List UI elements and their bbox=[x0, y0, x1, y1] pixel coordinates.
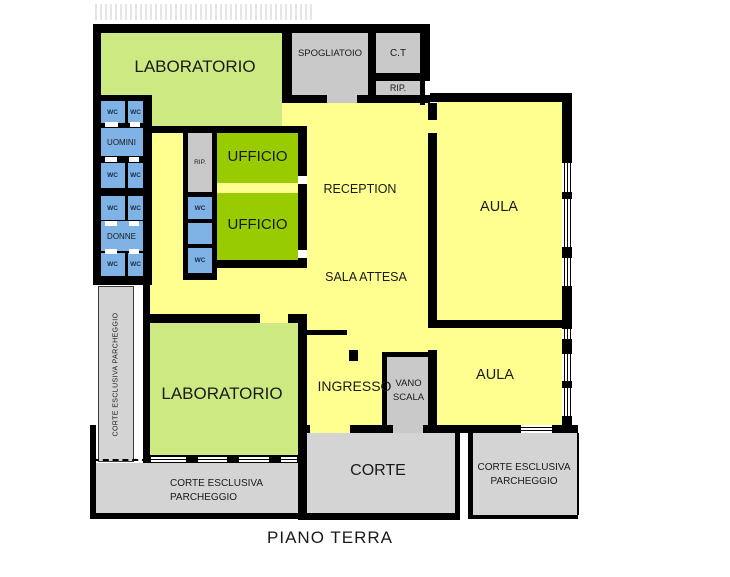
plan-title: PIANO TERRA bbox=[245, 527, 415, 549]
zone-label-sala-attesa: SALA ATTESA bbox=[306, 269, 426, 285]
wall bbox=[420, 24, 430, 73]
room-wc: WC bbox=[100, 101, 125, 123]
window bbox=[562, 198, 572, 248]
room-uomini: UOMINI bbox=[100, 128, 143, 156]
room-wc: WC bbox=[128, 163, 143, 188]
door-opening bbox=[393, 425, 423, 433]
wall bbox=[428, 320, 572, 328]
court-label-corte: CORTE bbox=[318, 461, 438, 481]
door-opening bbox=[130, 122, 140, 127]
door-opening bbox=[129, 249, 139, 254]
room-rip-column: RIP. bbox=[188, 133, 212, 192]
room-label: WC bbox=[130, 261, 141, 268]
wall bbox=[368, 73, 430, 81]
wall bbox=[298, 126, 307, 268]
room-spogliatoio bbox=[292, 33, 368, 95]
room-label-spogliatoio: SPOGLIATOIO bbox=[292, 46, 368, 60]
room-label-ufficio-2: UFFICIO bbox=[217, 215, 298, 233]
room-label: WC bbox=[107, 172, 118, 179]
room-label: WC bbox=[107, 109, 118, 116]
door-opening bbox=[428, 328, 437, 350]
wall bbox=[93, 24, 101, 285]
door-opening bbox=[327, 95, 357, 103]
door-opening bbox=[105, 249, 117, 254]
window bbox=[562, 387, 572, 417]
room-label: RIP. bbox=[390, 83, 406, 93]
room-wc: WC bbox=[100, 196, 125, 220]
court-label-parcheggio-left-strip: CORTE ESCLUSIVA PARCHEGGIO bbox=[110, 288, 123, 462]
window bbox=[520, 425, 553, 433]
structural-column bbox=[349, 350, 358, 361]
door-opening bbox=[310, 425, 350, 433]
room-label: WC bbox=[195, 205, 206, 212]
wall bbox=[298, 513, 460, 520]
room-label: UOMINI bbox=[107, 138, 136, 147]
door-opening bbox=[428, 120, 437, 133]
window bbox=[238, 456, 270, 462]
door-opening bbox=[105, 221, 117, 226]
wall bbox=[212, 260, 307, 268]
court-label-parcheggio-bottom-left: CORTE ESCLUSIVA PARCHEGGIO bbox=[170, 477, 302, 505]
wall bbox=[428, 103, 437, 120]
room-wc: WC bbox=[128, 196, 143, 220]
door-opening bbox=[298, 250, 307, 258]
window bbox=[562, 353, 572, 382]
wall bbox=[282, 24, 292, 103]
room-rip-top: RIP. bbox=[376, 81, 420, 95]
room-wc: WC bbox=[188, 197, 212, 219]
wall bbox=[143, 280, 150, 461]
wall bbox=[428, 350, 437, 433]
room-wc: WC bbox=[100, 253, 125, 276]
room-label: C.T bbox=[390, 48, 406, 59]
room-ct: C.T bbox=[376, 33, 420, 73]
wall bbox=[368, 24, 376, 103]
door-opening bbox=[298, 176, 307, 184]
wall bbox=[430, 93, 572, 102]
room-wc: WC bbox=[128, 101, 143, 123]
room-wc: WC bbox=[128, 253, 143, 276]
room-label: WC bbox=[130, 205, 141, 212]
room-label: WC bbox=[107, 261, 118, 268]
room-label-aula-top: AULA bbox=[449, 198, 549, 216]
room-label: RIP. bbox=[194, 159, 206, 166]
wall bbox=[90, 425, 96, 518]
wall bbox=[93, 24, 430, 33]
wall bbox=[455, 433, 460, 513]
room-label-aula-bottom: AULA bbox=[445, 366, 545, 384]
hatch-marks bbox=[95, 4, 313, 20]
room-label-laboratorio-top: LABORATORIO bbox=[115, 57, 275, 77]
window bbox=[562, 328, 572, 340]
wall bbox=[143, 314, 260, 323]
room-label: WC bbox=[195, 257, 206, 264]
wall bbox=[428, 133, 437, 328]
room-label: WC bbox=[107, 205, 118, 212]
room-label: WC bbox=[130, 109, 141, 116]
door-opening bbox=[105, 157, 117, 162]
wall bbox=[468, 515, 578, 519]
zone-label-ingresso: INGRESSO bbox=[302, 377, 407, 394]
court-label-parcheggio-bottom-right: CORTE ESCLUSIVA PARCHEGGIO bbox=[470, 461, 578, 493]
window bbox=[150, 456, 187, 462]
wall bbox=[382, 352, 430, 357]
door-opening bbox=[105, 122, 118, 127]
window bbox=[197, 456, 228, 462]
room-label-laboratorio-bottom: LABORATORIO bbox=[142, 384, 302, 404]
room-wc: WC bbox=[100, 163, 125, 188]
wall bbox=[143, 126, 307, 133]
door-opening bbox=[129, 157, 139, 162]
window bbox=[562, 162, 572, 193]
door-opening bbox=[129, 221, 139, 226]
room-wc: WC bbox=[188, 248, 212, 273]
window bbox=[280, 456, 298, 462]
room-label-ufficio-1: UFFICIO bbox=[217, 147, 298, 165]
wall bbox=[300, 330, 347, 335]
room-label: WC bbox=[130, 172, 141, 179]
wall bbox=[90, 513, 300, 519]
room-wc-lobby bbox=[188, 223, 212, 244]
zone-label-reception: RECEPTION bbox=[310, 181, 410, 197]
window bbox=[562, 257, 572, 287]
room-label: DONNE bbox=[107, 232, 136, 241]
floor-plan: C.T RIP. WC WC UOMINI WC WC WC WC DONNE … bbox=[0, 0, 730, 577]
